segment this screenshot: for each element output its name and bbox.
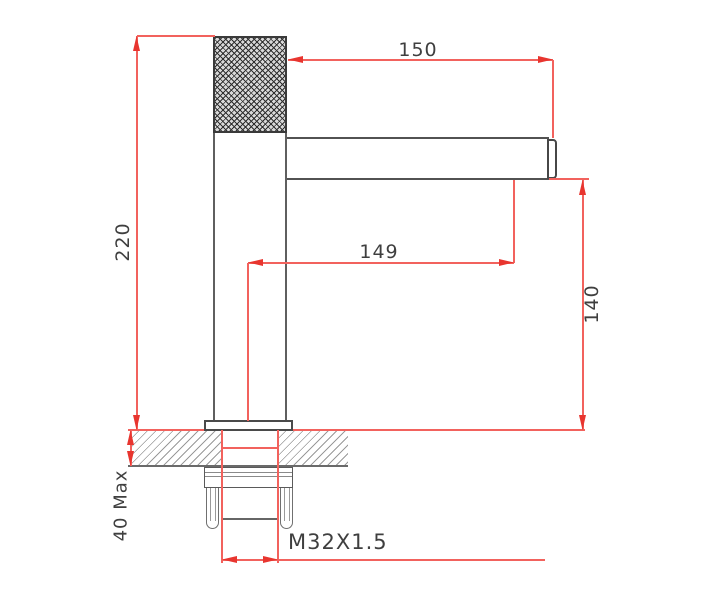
arrowhead-up-icon xyxy=(579,180,586,195)
dim-150-right-extension xyxy=(552,60,554,138)
arrowhead-right-icon xyxy=(263,556,278,563)
mounting-stud-left xyxy=(206,488,219,521)
dim-m32-leader xyxy=(278,559,545,561)
dim-label-deck-thickness: 40 Max xyxy=(111,466,132,546)
faucet-handle-knurl xyxy=(213,36,287,133)
arrowhead-down-icon xyxy=(579,415,586,430)
dim-label-spout-height: 140 xyxy=(581,274,603,334)
drawing-canvas: 150 149 220 140 40 Max M32X1.5 xyxy=(0,0,720,600)
faucet-spout xyxy=(287,137,549,180)
arrowhead-left-icon xyxy=(288,56,303,63)
arrowhead-down-icon xyxy=(133,415,140,430)
thread-line-left xyxy=(221,430,223,563)
base-flange xyxy=(204,420,293,431)
arrowhead-up-icon xyxy=(133,36,140,51)
threaded-shank xyxy=(222,488,278,520)
mounting-stud-right xyxy=(280,488,293,521)
mounting-washer xyxy=(204,467,293,488)
dim-220-top-extension xyxy=(137,35,215,37)
dim-149-right-extension xyxy=(513,180,515,263)
deck-top-extension-line xyxy=(128,429,585,431)
arrowhead-right-icon xyxy=(499,259,514,266)
dim-label-spout-length-top: 150 xyxy=(388,39,448,61)
deck-hatch-left xyxy=(131,431,222,466)
spout-end-cap xyxy=(547,139,557,179)
arrowhead-left-icon xyxy=(222,556,237,563)
thread-line-right xyxy=(277,430,279,563)
dim-label-spout-reach: 149 xyxy=(349,241,409,263)
arrowhead-right-icon xyxy=(538,56,553,63)
dim-label-thread-spec: M32X1.5 xyxy=(288,530,408,554)
dim-149-center-extension xyxy=(247,263,249,421)
stud-cap-left xyxy=(206,521,219,529)
deck-hatch-right xyxy=(278,431,348,466)
dim-220-line xyxy=(136,36,138,430)
thread-depth-line xyxy=(222,447,278,449)
dim-label-overall-height: 220 xyxy=(112,212,134,272)
stud-cap-right xyxy=(280,521,293,529)
